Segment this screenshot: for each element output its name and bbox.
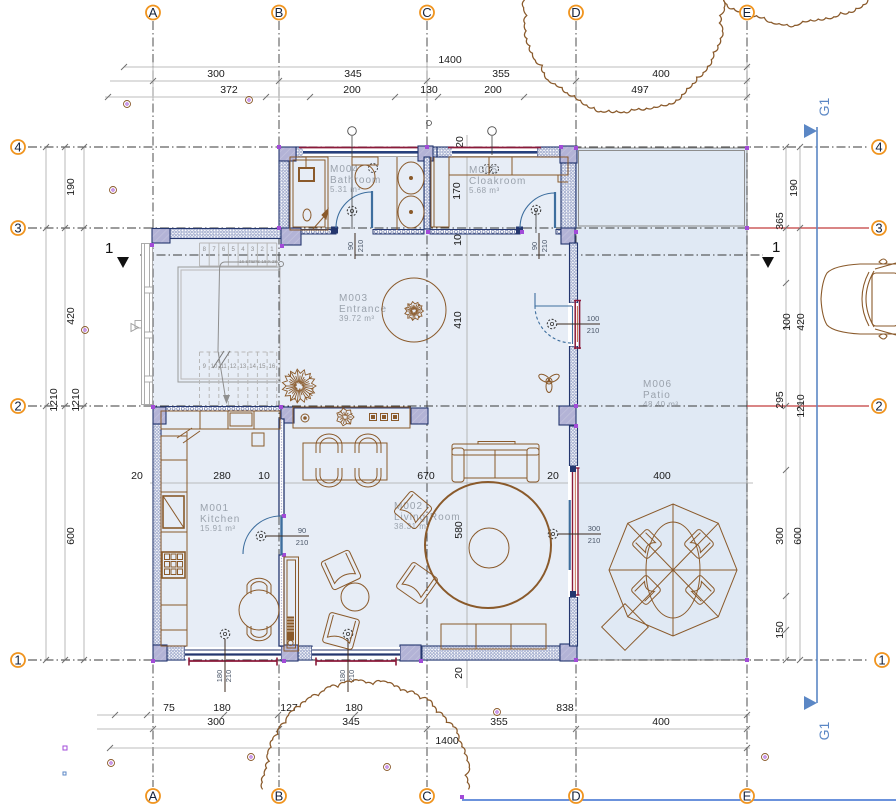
svg-text:180: 180 (215, 670, 224, 683)
svg-text:210: 210 (224, 670, 233, 683)
svg-text:G1: G1 (816, 721, 832, 740)
svg-text:38.31 m³: 38.31 m³ (394, 522, 430, 531)
svg-text:D: D (571, 789, 580, 804)
svg-text:A: A (149, 5, 158, 20)
svg-text:345: 345 (342, 716, 360, 728)
svg-text:48.40 m³: 48.40 m³ (643, 400, 679, 409)
svg-text:M006: M006 (643, 379, 672, 390)
svg-text:20: 20 (131, 470, 143, 482)
svg-text:130: 130 (420, 84, 438, 96)
svg-text:372: 372 (220, 84, 238, 96)
svg-text:E: E (743, 5, 752, 20)
svg-text:200: 200 (484, 84, 502, 96)
svg-text:16: 16 (269, 364, 276, 370)
svg-text:4: 4 (14, 140, 21, 155)
svg-text:10: 10 (211, 364, 218, 370)
svg-text:127: 127 (280, 702, 298, 714)
svg-text:355: 355 (490, 716, 508, 728)
svg-text:200: 200 (343, 84, 361, 96)
svg-text:15.91 m³: 15.91 m³ (200, 524, 236, 533)
svg-text:B: B (275, 5, 284, 20)
svg-text:5.31 m³: 5.31 m³ (330, 185, 361, 194)
svg-text:420: 420 (795, 313, 807, 331)
svg-text:150: 150 (774, 621, 786, 639)
svg-text:190: 190 (788, 179, 800, 197)
svg-text:5.68 m³: 5.68 m³ (469, 186, 500, 195)
svg-text:600: 600 (65, 527, 77, 545)
svg-text:300: 300 (207, 68, 225, 80)
svg-text:90: 90 (346, 242, 355, 250)
svg-text:1400: 1400 (435, 735, 459, 747)
svg-text:210: 210 (587, 326, 600, 335)
svg-text:838: 838 (556, 702, 574, 714)
svg-text:210: 210 (296, 538, 309, 547)
svg-text:11: 11 (220, 364, 227, 370)
svg-text:13: 13 (240, 364, 247, 370)
svg-text:1400: 1400 (438, 54, 462, 66)
svg-text:1: 1 (105, 240, 113, 257)
svg-text:210: 210 (540, 240, 549, 253)
svg-text:345: 345 (344, 68, 362, 80)
svg-text:180: 180 (213, 702, 231, 714)
svg-text:4: 4 (875, 140, 882, 155)
svg-text:670: 670 (417, 470, 435, 482)
svg-text:2: 2 (875, 399, 882, 414)
svg-text:1210: 1210 (48, 388, 60, 412)
svg-text:M004: M004 (330, 164, 359, 175)
svg-text:90: 90 (530, 242, 539, 250)
svg-text:16 STEPS 18 X 28: 16 STEPS 18 X 28 (239, 259, 277, 264)
svg-text:1210: 1210 (70, 388, 82, 412)
svg-text:3: 3 (875, 221, 882, 236)
svg-text:D: D (571, 5, 580, 20)
svg-text:A: A (149, 789, 158, 804)
svg-text:C: C (422, 789, 431, 804)
svg-text:12: 12 (230, 364, 237, 370)
svg-text:410: 410 (452, 311, 464, 329)
svg-text:365: 365 (774, 212, 786, 230)
svg-text:3: 3 (14, 221, 21, 236)
svg-text:400: 400 (652, 716, 670, 728)
svg-text:75: 75 (163, 702, 175, 714)
svg-text:280: 280 (213, 470, 231, 482)
svg-text:2: 2 (14, 399, 21, 414)
svg-text:210: 210 (588, 536, 601, 545)
svg-text:210: 210 (356, 240, 365, 253)
svg-text:M001: M001 (200, 503, 229, 514)
svg-text:170: 170 (451, 182, 463, 200)
svg-text:355: 355 (492, 68, 510, 80)
svg-text:180: 180 (345, 702, 363, 714)
svg-text:1: 1 (14, 653, 21, 668)
svg-text:15: 15 (259, 364, 266, 370)
svg-text:295: 295 (774, 391, 786, 409)
svg-text:1210: 1210 (795, 394, 807, 418)
svg-text:39.72 m³: 39.72 m³ (339, 314, 375, 323)
svg-text:14: 14 (249, 364, 256, 370)
svg-text:600: 600 (792, 527, 804, 545)
svg-text:G1: G1 (816, 97, 832, 116)
svg-text:100: 100 (781, 313, 793, 331)
svg-text:300: 300 (588, 524, 601, 533)
svg-text:1: 1 (878, 653, 885, 668)
svg-text:M005: M005 (469, 165, 498, 176)
svg-text:180: 180 (338, 670, 347, 683)
svg-text:90: 90 (298, 526, 306, 535)
svg-text:190: 190 (65, 178, 77, 196)
svg-text:497: 497 (631, 84, 649, 96)
svg-text:B: B (275, 789, 284, 804)
svg-text:420: 420 (65, 307, 77, 325)
svg-text:20: 20 (453, 667, 465, 679)
svg-text:580: 580 (453, 521, 465, 539)
svg-text:M003: M003 (339, 293, 368, 304)
svg-text:10: 10 (258, 470, 270, 482)
svg-text:300: 300 (207, 716, 225, 728)
svg-text:400: 400 (653, 470, 671, 482)
svg-text:20: 20 (547, 470, 559, 482)
svg-text:300: 300 (774, 527, 786, 545)
svg-text:10: 10 (452, 234, 464, 246)
svg-text:400: 400 (652, 68, 670, 80)
svg-text:20: 20 (454, 136, 466, 148)
svg-text:E: E (743, 789, 752, 804)
svg-text:M002: M002 (394, 501, 423, 512)
svg-text:C: C (422, 5, 431, 20)
svg-text:1: 1 (772, 239, 780, 256)
svg-text:100: 100 (587, 314, 600, 323)
